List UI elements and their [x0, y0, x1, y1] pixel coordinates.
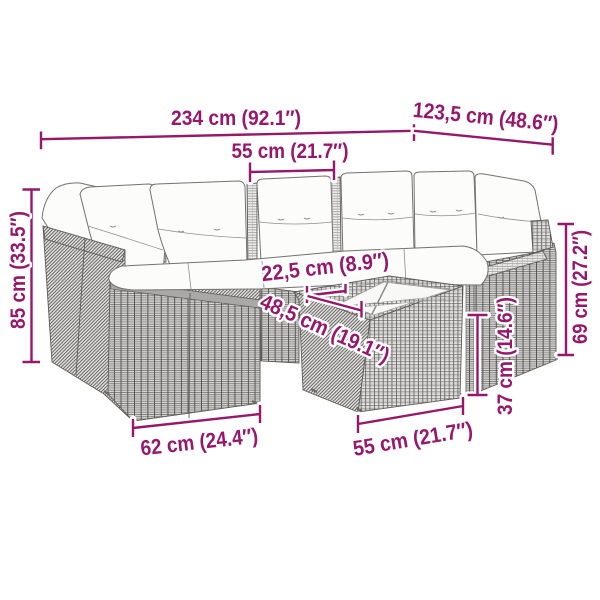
svg-text:85 cm (33.5″): 85 cm (33.5″) — [6, 211, 30, 329]
svg-text:55 cm (21.7″): 55 cm (21.7″) — [232, 139, 349, 163]
svg-text:234 cm (92.1″): 234 cm (92.1″) — [171, 106, 301, 130]
svg-text:69 cm (27.2″): 69 cm (27.2″) — [568, 230, 592, 344]
svg-text:37 cm (14.6″): 37 cm (14.6″) — [493, 297, 517, 415]
